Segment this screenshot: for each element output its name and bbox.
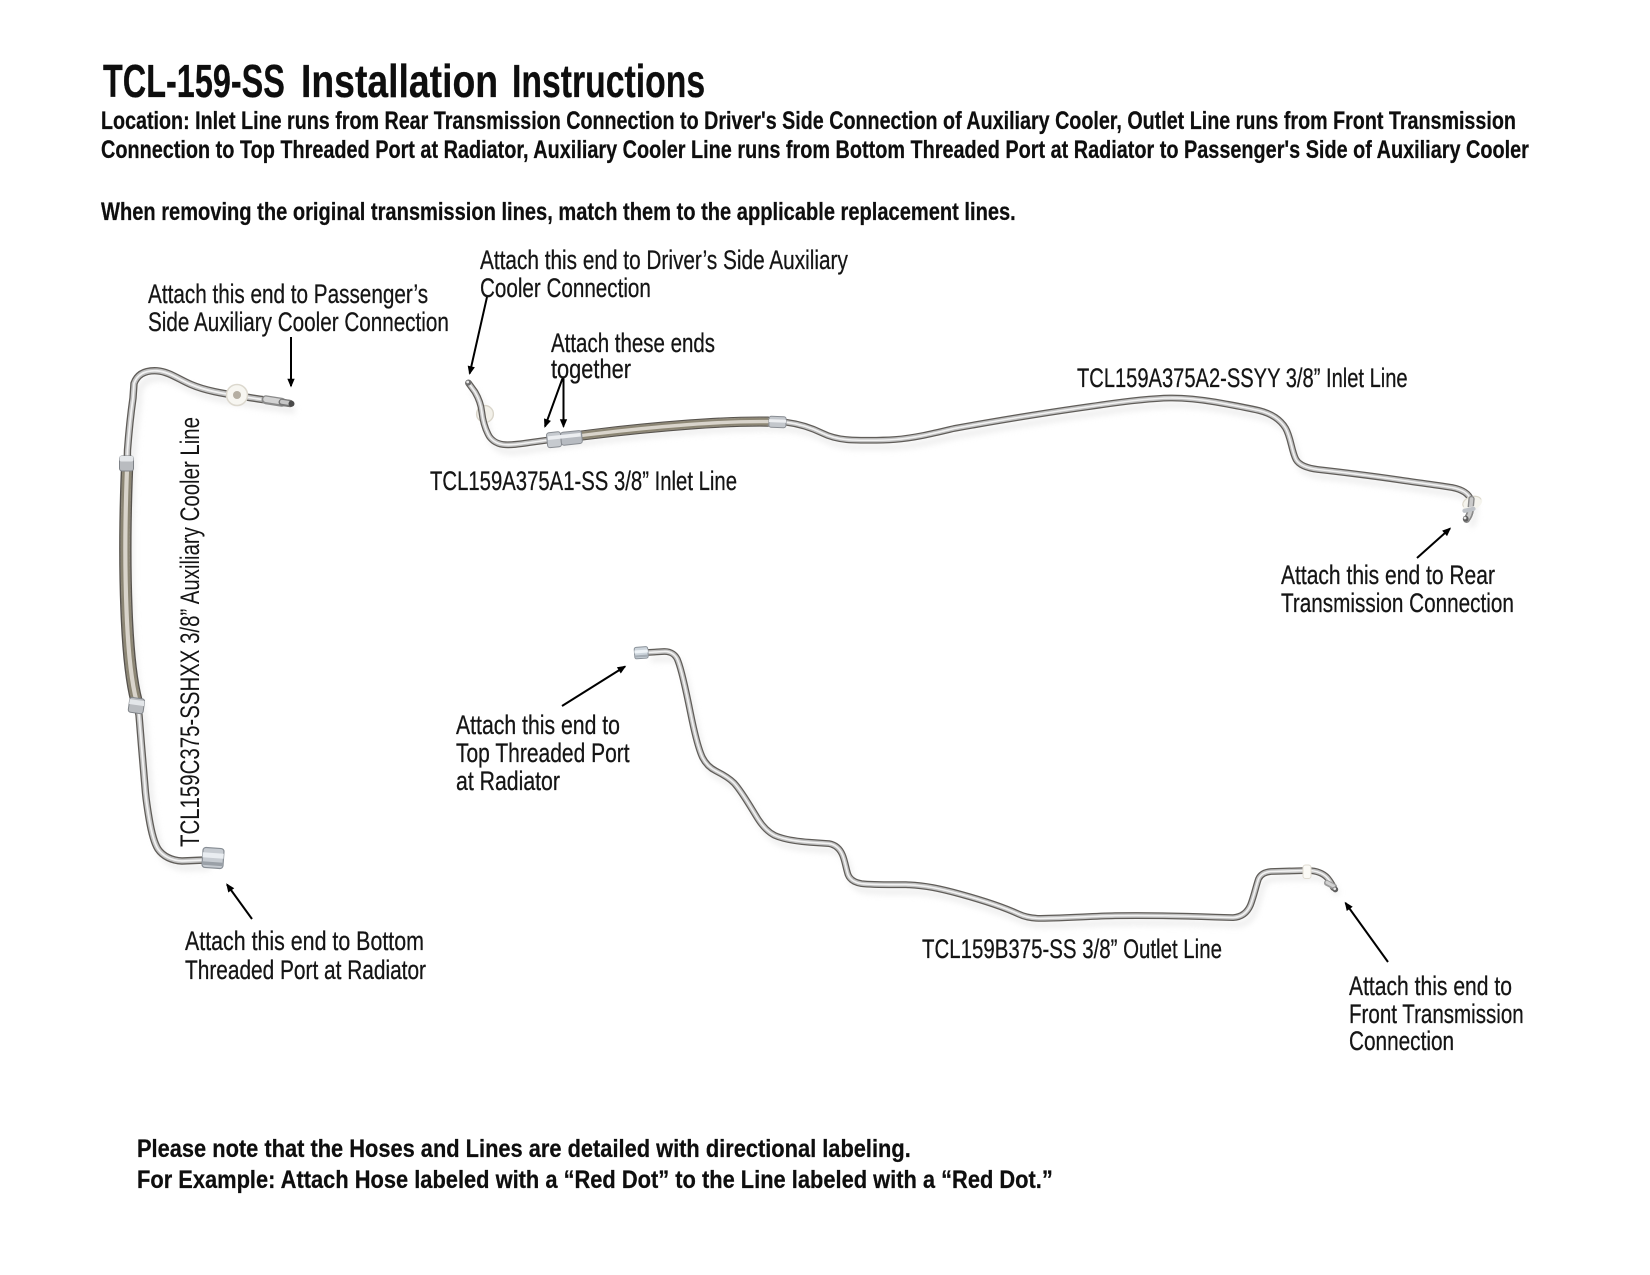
svg-text:TCL159C375-SSHXX 3/8” Auxilia: TCL159C375-SSHXX 3/8” Auxiliary Cooler L… bbox=[175, 417, 205, 847]
